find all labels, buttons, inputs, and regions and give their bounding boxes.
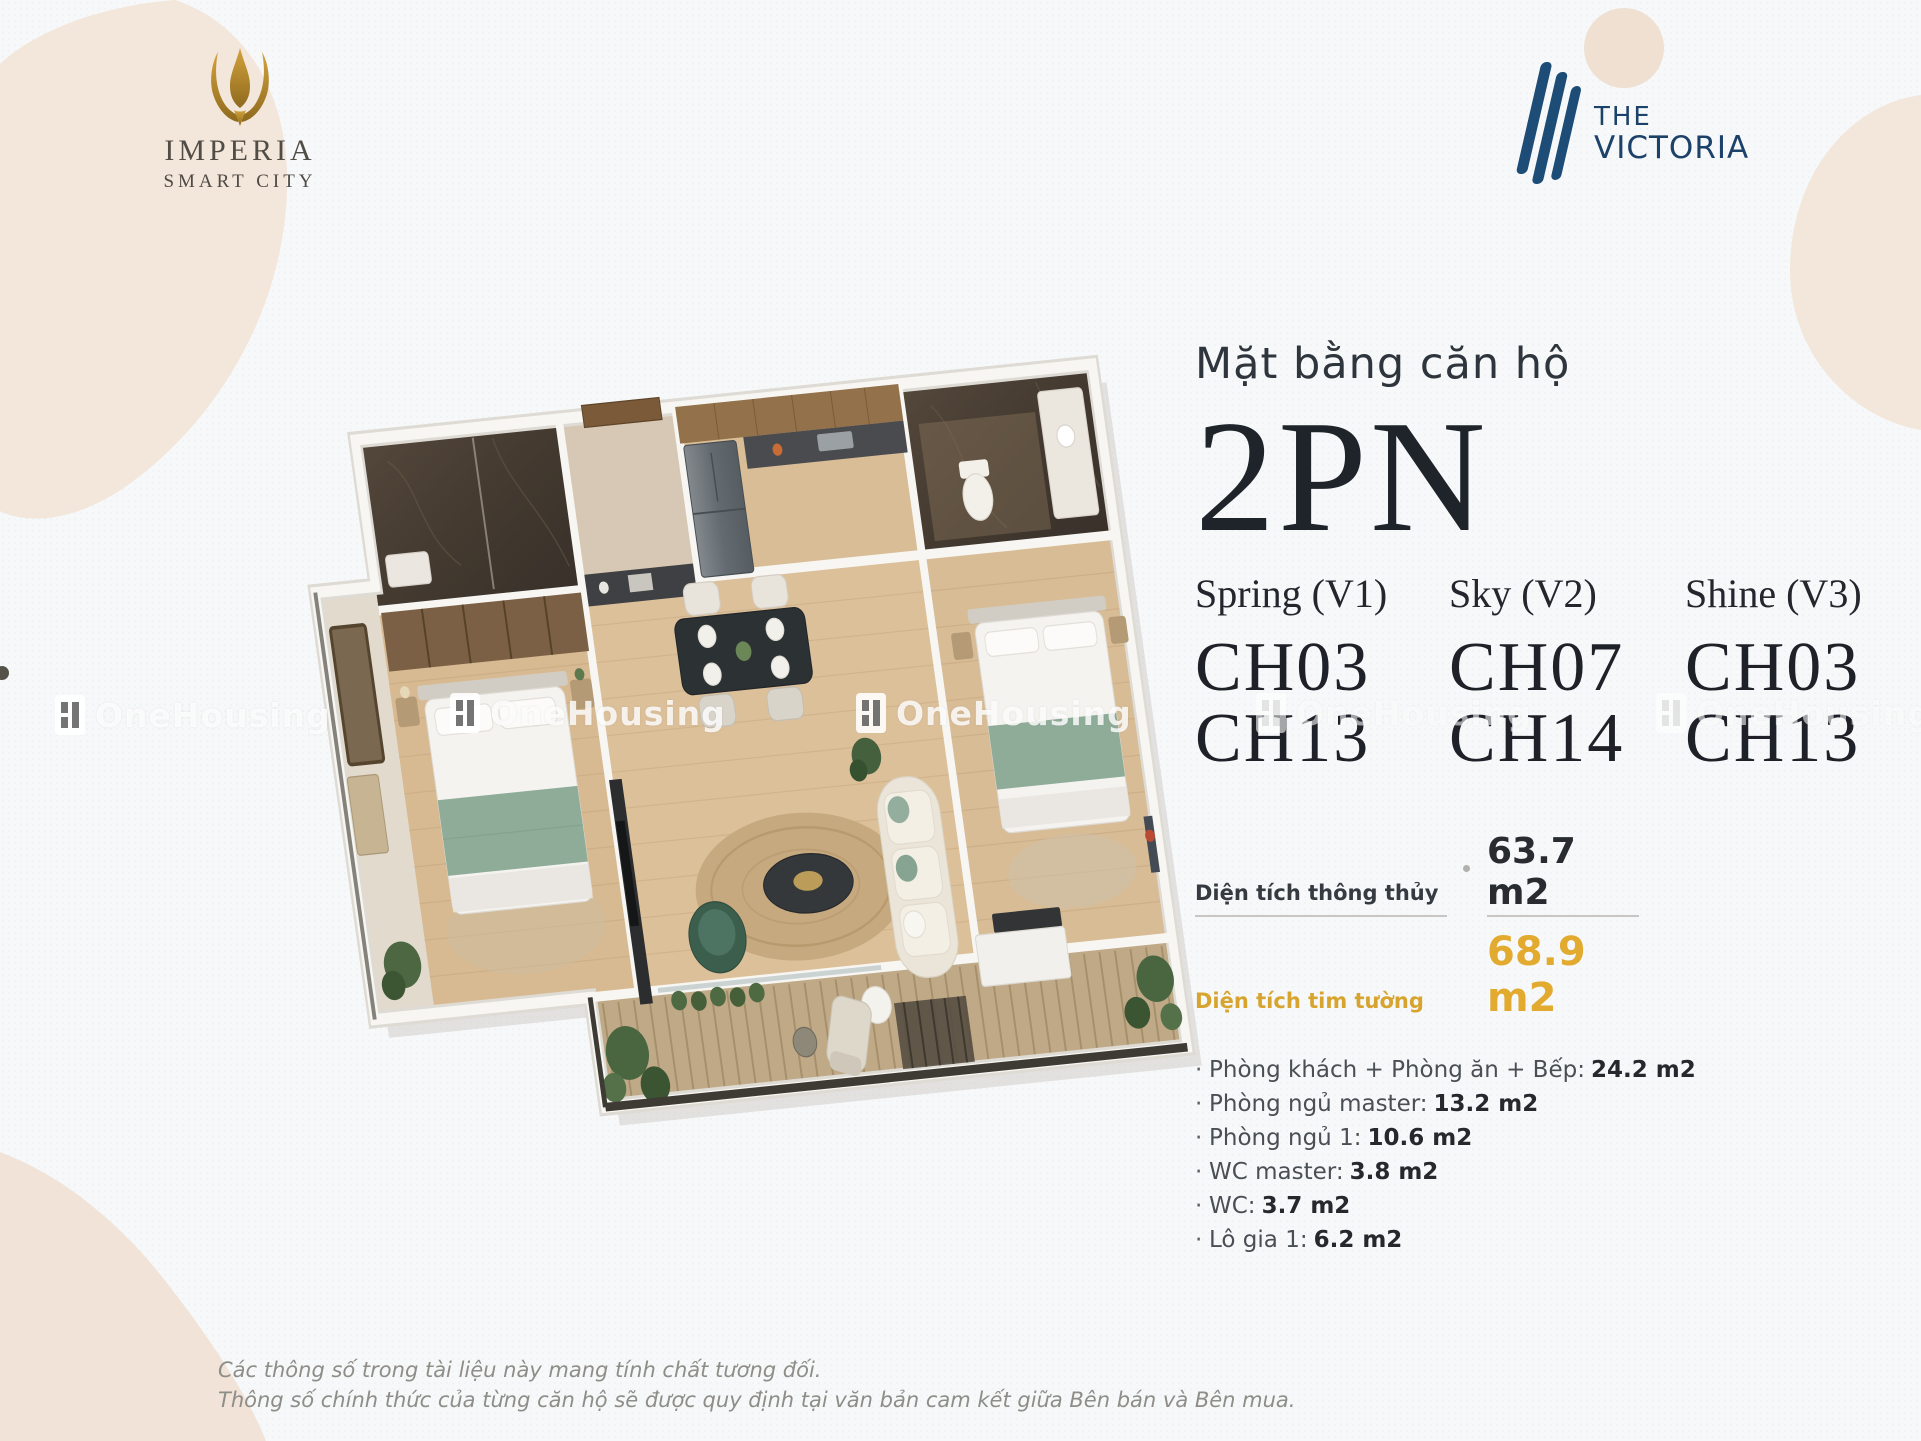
nightstand xyxy=(395,696,420,727)
disclaimer-line-2: Thông số chính thức của từng căn hộ sẽ đ… xyxy=(218,1385,1295,1415)
nightstand xyxy=(570,678,595,709)
room-item: ·Lô gia 1:6.2 m2 xyxy=(1195,1223,1895,1257)
room-value: 10.6 m2 xyxy=(1367,1125,1472,1151)
bullet-dot: · xyxy=(1195,1053,1209,1087)
variant-name: Shine (V3) xyxy=(1685,570,1885,618)
dining-chair xyxy=(766,686,805,721)
variant-columns: Spring (V1) CH03 CH13 Sky (V2) CH07 CH14… xyxy=(1195,570,1895,775)
area-value: 63.7 m2 xyxy=(1487,831,1639,917)
room-value: 3.7 m2 xyxy=(1262,1193,1351,1219)
imperia-tulip-icon xyxy=(204,48,276,128)
master-sink xyxy=(385,551,432,587)
floor-plan-render xyxy=(55,325,1385,1215)
unit-code: CH03 xyxy=(1685,632,1885,703)
room-item: ·Phòng ngủ 1:10.6 m2 xyxy=(1195,1121,1895,1155)
variant-units: CH03 CH13 xyxy=(1195,632,1449,775)
pillow xyxy=(984,627,1040,657)
pillow xyxy=(434,703,494,736)
room-value: 13.2 m2 xyxy=(1434,1091,1539,1117)
bullet-dot: · xyxy=(1195,1121,1209,1155)
disclaimer: Các thông số trong tài liệu này mang tín… xyxy=(218,1355,1295,1416)
bullet-dot: · xyxy=(1195,1087,1209,1121)
dining-chair xyxy=(698,693,737,728)
unit-code: CH13 xyxy=(1685,703,1885,774)
variant-name: Sky (V2) xyxy=(1449,570,1685,618)
area-label: Diện tích tim tường xyxy=(1195,989,1447,1023)
pillow xyxy=(1042,621,1098,651)
variant-spring: Spring (V1) CH03 CH13 xyxy=(1195,570,1449,775)
nightstand xyxy=(951,632,974,661)
imperia-logo: IMPERIA SMART CITY xyxy=(128,48,352,193)
variant-units: CH03 CH13 xyxy=(1685,632,1885,775)
room-label: Lô gia 1: xyxy=(1209,1227,1308,1253)
counter-appliance xyxy=(628,573,654,592)
bullet-dot: · xyxy=(1195,1189,1209,1223)
panel-subtitle: Mặt bằng căn hộ xyxy=(1195,338,1895,390)
dining-chair xyxy=(682,581,721,616)
room-label: WC: xyxy=(1209,1193,1256,1219)
dining-chair xyxy=(750,574,789,609)
bullet-dot: · xyxy=(1195,1155,1209,1189)
room-value: 24.2 m2 xyxy=(1591,1057,1696,1083)
room-label: Phòng ngủ 1: xyxy=(1209,1125,1361,1151)
room-item: ·Phòng khách + Phòng ăn + Bếp:24.2 m2 xyxy=(1195,1053,1895,1087)
victoria-logo: THE VICTORIA xyxy=(1516,60,1749,190)
room-label: Phòng khách + Phòng ăn + Bếp: xyxy=(1209,1057,1585,1083)
variant-sky: Sky (V2) CH07 CH14 xyxy=(1449,570,1685,775)
separator-dot xyxy=(1463,865,1470,872)
area-summary: Diện tích thông thủy 63.7 m2 Diện tích t… xyxy=(1195,831,1675,1023)
room-label: Phòng ngủ master: xyxy=(1209,1091,1428,1117)
white-planter-box xyxy=(975,926,1071,986)
imperia-subtitle: SMART CITY xyxy=(128,171,352,193)
area-row-carpet: Diện tích thông thủy 63.7 m2 xyxy=(1195,831,1675,917)
room-list: ·Phòng khách + Phòng ăn + Bếp:24.2 m2 ·P… xyxy=(1195,1053,1895,1257)
room-value: 3.8 m2 xyxy=(1350,1159,1439,1185)
dot-left-edge xyxy=(0,666,9,680)
master-bed-runner xyxy=(438,786,588,876)
room-label: WC master: xyxy=(1209,1159,1344,1185)
room-item: ·WC:3.7 m2 xyxy=(1195,1189,1895,1223)
room-value: 6.2 m2 xyxy=(1314,1227,1403,1253)
victoria-wordmark-the: THE xyxy=(1594,104,1749,131)
area-row-gross: Diện tích tim tường 68.9 m2 xyxy=(1195,929,1675,1023)
room-item: ·Phòng ngủ master:13.2 m2 xyxy=(1195,1087,1895,1121)
unit-code: CH14 xyxy=(1449,703,1685,774)
page-title: 2PN xyxy=(1195,396,1895,556)
victoria-wordmark-victoria: VICTORIA xyxy=(1594,131,1749,165)
kitchen-sink xyxy=(817,431,854,452)
variant-shine: Shine (V3) CH03 CH13 xyxy=(1685,570,1885,775)
area-label: Diện tích thông thủy xyxy=(1195,881,1447,917)
room-item: ·WC master:3.8 m2 xyxy=(1195,1155,1895,1189)
victoria-sails-icon xyxy=(1516,60,1582,190)
bullet-dot: · xyxy=(1195,1223,1209,1257)
disclaimer-line-1: Các thông số trong tài liệu này mang tín… xyxy=(218,1355,1295,1385)
nightstand xyxy=(1108,616,1129,645)
bedroom2-runner xyxy=(988,713,1125,790)
variant-units: CH07 CH14 xyxy=(1449,632,1685,775)
unit-code: CH03 xyxy=(1195,632,1449,703)
unit-code: CH13 xyxy=(1195,703,1449,774)
variant-name: Spring (V1) xyxy=(1195,570,1449,618)
unit-code: CH07 xyxy=(1449,632,1685,703)
imperia-wordmark: IMPERIA xyxy=(128,134,352,168)
pillow xyxy=(498,697,558,730)
area-value: 68.9 m2 xyxy=(1487,929,1639,1023)
info-panel: Mặt bằng căn hộ 2PN Spring (V1) CH03 CH1… xyxy=(1195,338,1895,1257)
